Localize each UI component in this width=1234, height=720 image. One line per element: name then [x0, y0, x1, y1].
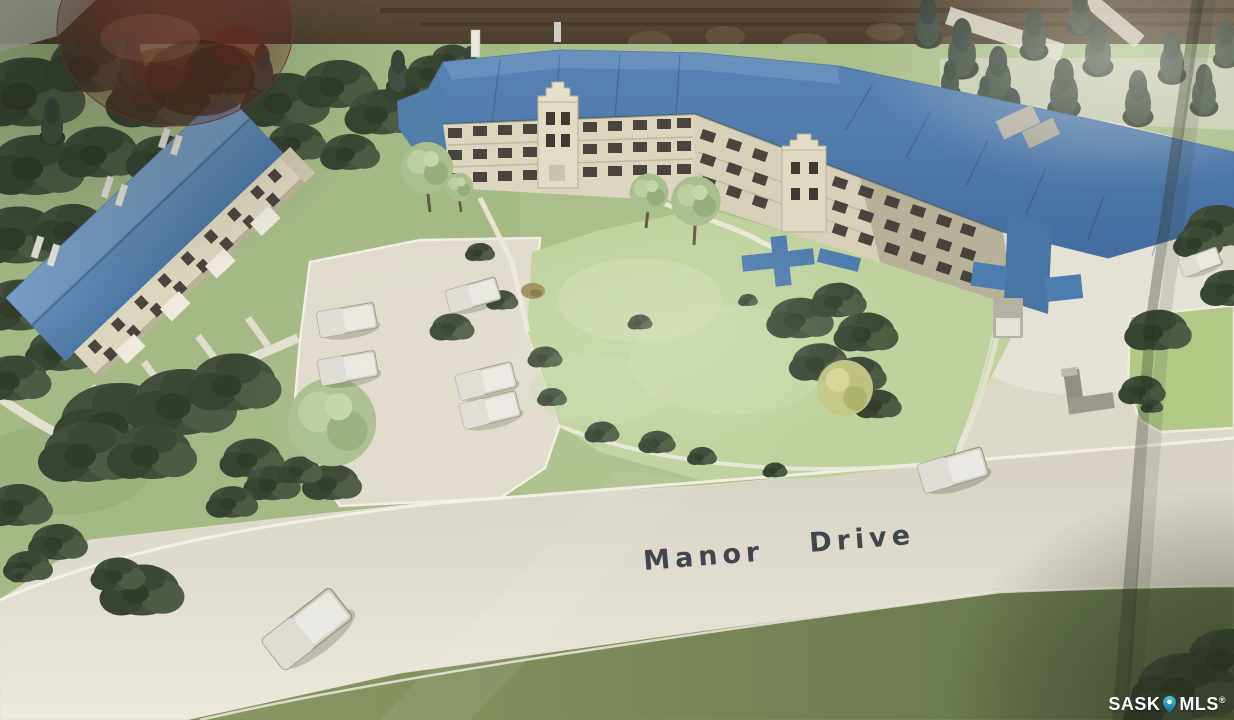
map-pin-icon — [1163, 696, 1176, 713]
model-photo: Manor Drive SASK MLS ® — [0, 0, 1234, 720]
model-photo-canvas: Manor Drive — [0, 0, 1234, 720]
saskmls-watermark: SASK MLS ® — [1108, 694, 1226, 715]
watermark-registered: ® — [1219, 696, 1226, 705]
watermark-sask: SASK — [1108, 694, 1160, 715]
watermark-mls: MLS — [1179, 694, 1219, 715]
glass-reflections — [0, 0, 1234, 720]
